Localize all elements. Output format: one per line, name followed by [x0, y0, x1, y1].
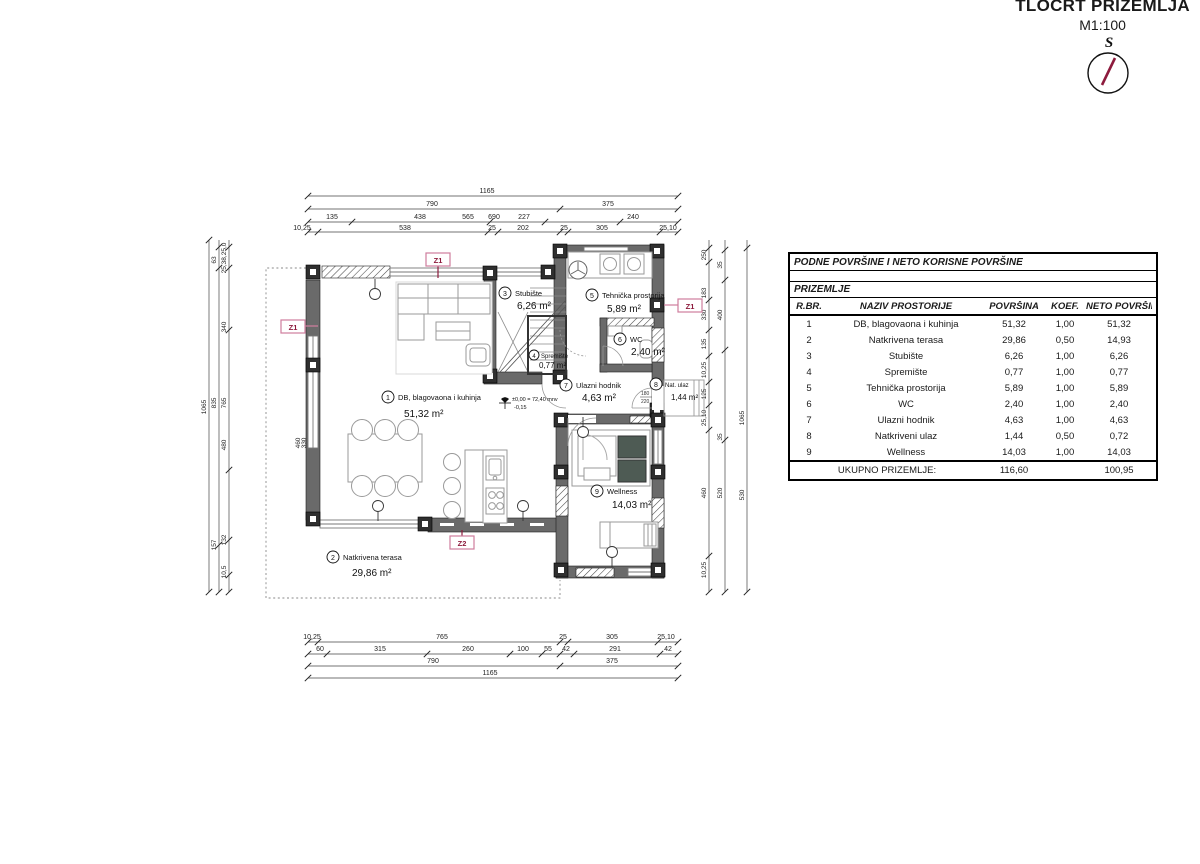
svg-text:5,89 m²: 5,89 m²	[607, 304, 642, 315]
svg-text:Spremište: Spremište	[541, 354, 569, 360]
dimensions-left	[206, 237, 232, 595]
col-header-rbr: R.BR.	[790, 301, 828, 312]
svg-text:4,63 m²: 4,63 m²	[582, 393, 617, 404]
svg-text:42: 42	[562, 646, 570, 653]
tech-room-fixtures	[568, 252, 652, 279]
svg-text:565: 565	[462, 214, 474, 221]
svg-text:480: 480	[221, 439, 228, 450]
table-section-title: PRIZEMLJE	[790, 282, 1156, 298]
north-compass: S	[1088, 35, 1128, 93]
dimensions-right-labels: 250 183 330 135 10,25 125 25,10 460 10,2…	[701, 249, 746, 578]
svg-text:25,10: 25,10	[657, 634, 675, 641]
svg-text:0,77 m²: 0,77 m²	[539, 361, 566, 370]
svg-text:315: 315	[374, 646, 386, 653]
room-label-staircase: 3 Stubište 6,26 m²	[499, 287, 552, 312]
svg-text:438: 438	[414, 214, 426, 221]
svg-text:790: 790	[427, 658, 439, 665]
marker-z1-right: Z1	[686, 302, 695, 311]
room-label-living: 1 DB, blagovaona i kuhinja 51,32 m²	[382, 391, 482, 420]
svg-text:530: 530	[739, 489, 746, 500]
col-header-koef: KOEF.	[1044, 301, 1086, 312]
svg-text:520: 520	[717, 487, 724, 498]
table-row: 3 Stubište 6,26 1,00 6,26	[790, 348, 1156, 364]
marker-z2-bottom: Z2	[458, 539, 467, 548]
areas-table: PODNE POVRŠINE I NETO KORISNE POVRŠINE P…	[788, 252, 1158, 481]
svg-text:10,5: 10,5	[221, 565, 228, 578]
svg-text:125: 125	[701, 388, 708, 399]
table-gap	[790, 271, 1156, 282]
table-row: 4 Spremište 0,77 1,00 0,77	[790, 364, 1156, 380]
total-net: 100,95	[1086, 465, 1152, 476]
svg-text:220: 220	[641, 399, 650, 405]
marker-z1-top: Z1	[434, 256, 443, 265]
svg-text:183: 183	[701, 287, 708, 298]
svg-text:460: 460	[701, 487, 708, 498]
svg-text:25: 25	[560, 225, 568, 232]
total-area: 116,60	[984, 465, 1044, 476]
svg-text:Natkrivena terasa: Natkrivena terasa	[343, 553, 403, 562]
svg-text:±0,00 = 72,40 mnv: ±0,00 = 72,40 mnv	[512, 397, 558, 403]
table-total-row: UKUPNO PRIZEMLJE: 116,60 100,95	[790, 460, 1156, 479]
svg-text:180: 180	[641, 391, 650, 397]
svg-text:1,44 m²: 1,44 m²	[671, 393, 698, 402]
table-row: 9 Wellness 14,03 1,00 14,03	[790, 444, 1156, 460]
col-header-povrsina: POVRŠINA	[984, 301, 1044, 312]
room-label-wellness: 9 Wellness 14,03 m²	[591, 485, 652, 511]
col-header-neto: NETO POVRŠINA	[1086, 301, 1152, 312]
svg-text:1: 1	[386, 395, 390, 402]
room-label-terrace: 2 Natkrivena terasa 29,86 m²	[327, 551, 403, 579]
table-title: PODNE POVRŠINE I NETO KORISNE POVRŠINE	[790, 254, 1156, 271]
svg-text:51,32 m²: 51,32 m²	[404, 409, 444, 420]
svg-text:132: 132	[221, 534, 228, 545]
svg-text:227: 227	[518, 214, 530, 221]
svg-text:400: 400	[717, 309, 724, 320]
svg-text:DB, blagovaona i kuhinja: DB, blagovaona i kuhinja	[398, 393, 482, 402]
svg-text:Nat. ulaz: Nat. ulaz	[665, 383, 689, 389]
svg-text:6,26 m²: 6,26 m²	[517, 301, 552, 312]
svg-text:1065: 1065	[201, 399, 208, 414]
svg-text:1165: 1165	[479, 188, 494, 195]
svg-text:10,25: 10,25	[303, 634, 321, 641]
marker-z1-left: Z1	[289, 323, 298, 332]
svg-text:6: 6	[618, 337, 622, 344]
table-row: 6 WC 2,40 1,00 2,40	[790, 396, 1156, 412]
svg-text:Tehnička prostorija: Tehnička prostorija	[602, 291, 665, 300]
svg-text:135: 135	[701, 338, 708, 349]
svg-text:835: 835	[211, 397, 218, 408]
svg-text:25,10: 25,10	[659, 225, 677, 232]
svg-text:2: 2	[331, 555, 335, 562]
svg-text:25,38,25,0: 25,38,25,0	[221, 242, 228, 273]
svg-text:9: 9	[595, 489, 599, 496]
svg-text:60: 60	[316, 646, 324, 653]
svg-text:8: 8	[654, 382, 658, 389]
svg-text:765: 765	[436, 634, 448, 641]
dimensions-left-labels: 1065 63 835 157 25,38,25,0 340 765 480 1…	[201, 242, 308, 578]
svg-text:14,03 m²: 14,03 m²	[612, 500, 652, 511]
room-label-hall: 7 Ulazni hodnik 4,63 m²	[560, 379, 621, 404]
svg-text:1065: 1065	[739, 410, 746, 425]
svg-text:WC: WC	[630, 335, 643, 344]
svg-text:10,25: 10,25	[701, 361, 708, 378]
svg-text:10,25: 10,25	[293, 225, 311, 232]
svg-text:375: 375	[602, 201, 614, 208]
svg-text:305: 305	[606, 634, 618, 641]
drawing-sheet: TLOCRT PRIZEMLJA M1:100	[0, 0, 1200, 864]
svg-text:42: 42	[664, 646, 672, 653]
table-header-row: R.BR. NAZIV PROSTORIJE POVRŠINA KOEF. NE…	[790, 298, 1156, 316]
svg-text:35: 35	[717, 261, 724, 269]
svg-text:790: 790	[426, 201, 438, 208]
svg-text:340: 340	[221, 321, 228, 332]
svg-text:7: 7	[564, 383, 568, 390]
svg-text:63: 63	[211, 256, 218, 264]
svg-text:Wellness: Wellness	[607, 487, 638, 496]
svg-text:3: 3	[503, 291, 507, 298]
living-furniture	[348, 282, 507, 523]
svg-text:25: 25	[559, 634, 567, 641]
svg-text:240: 240	[627, 214, 639, 221]
svg-text:538: 538	[399, 225, 411, 232]
svg-text:250: 250	[701, 249, 708, 260]
svg-text:690: 690	[488, 214, 500, 221]
dimensions-top-labels: 1165 790 375 135 438 565 690 227 240 10,…	[293, 188, 677, 232]
table-row: 5 Tehnička prostorija 5,89 1,00 5,89	[790, 380, 1156, 396]
table-row: 1 DB, blagovaona i kuhinja 51,32 1,00 51…	[790, 316, 1156, 332]
elevation-marker: ±0,00 = 72,40 mnv -0,15	[499, 397, 558, 411]
svg-text:135: 135	[326, 214, 338, 221]
svg-text:765: 765	[221, 397, 228, 408]
svg-text:305: 305	[596, 225, 608, 232]
north-label: S	[1105, 35, 1113, 51]
table-row: 2 Natkrivena terasa 29,86 0,50 14,93	[790, 332, 1156, 348]
svg-text:260: 260	[462, 646, 474, 653]
svg-text:25,10: 25,10	[701, 409, 708, 426]
svg-text:375: 375	[606, 658, 618, 665]
svg-text:Stubište: Stubište	[515, 289, 542, 298]
table-row: 8 Natkriveni ulaz 1,44 0,50 0,72	[790, 428, 1156, 444]
svg-text:55: 55	[544, 646, 552, 653]
svg-text:291: 291	[609, 646, 621, 653]
svg-text:1165: 1165	[482, 670, 497, 677]
svg-text:100: 100	[517, 646, 529, 653]
svg-text:29,86 m²: 29,86 m²	[352, 568, 392, 579]
dimensions-bottom-labels: 10,25 765 25 305 25,10 60 315 260 100 55…	[303, 634, 675, 677]
svg-text:-0,15: -0,15	[514, 405, 527, 411]
svg-text:25: 25	[488, 225, 496, 232]
svg-text:2,40 m²: 2,40 m²	[631, 347, 666, 358]
svg-text:35: 35	[717, 433, 724, 441]
svg-text:Ulazni hodnik: Ulazni hodnik	[576, 381, 621, 390]
table-row: 7 Ulazni hodnik 4,63 1,00 4,63	[790, 412, 1156, 428]
svg-text:10,25: 10,25	[701, 561, 708, 578]
svg-text:5: 5	[590, 293, 594, 300]
total-label: UKUPNO PRIZEMLJE:	[790, 465, 984, 476]
col-header-naziv: NAZIV PROSTORIJE	[828, 301, 984, 312]
svg-text:202: 202	[517, 225, 529, 232]
svg-text:157: 157	[211, 539, 218, 550]
